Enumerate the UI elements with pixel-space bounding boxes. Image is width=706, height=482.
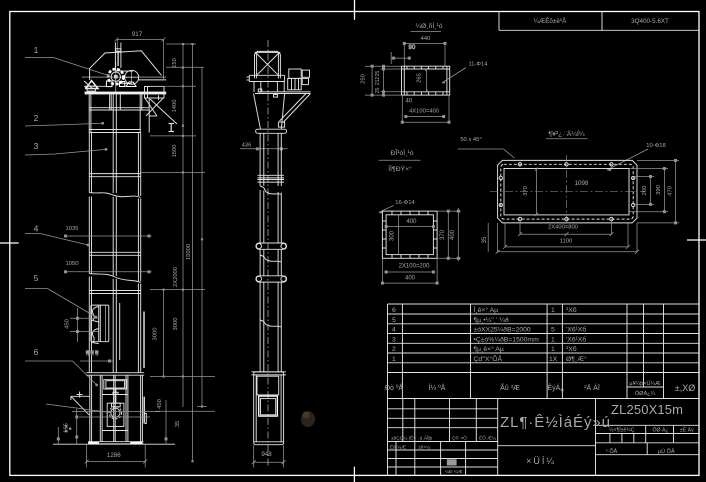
svg-text:×ÜÍ¼: ×ÜÍ¼ [526, 456, 556, 466]
svg-text:1X: 1X [549, 356, 558, 363]
svg-text:90: 90 [409, 45, 416, 51]
svg-text:3000: 3000 [153, 328, 159, 341]
svg-text:4: 4 [34, 224, 39, 234]
svg-text:400: 400 [405, 276, 416, 282]
svg-text:ZL¶·Ê½ÌáÉý»ú: ZL¶·Ê½ÌáÉý»ú [500, 414, 610, 431]
svg-text:ÍÌ¶ÐÝ×°: ÍÌ¶ÐÝ×° [388, 164, 412, 173]
svg-text:25: 25 [375, 71, 381, 77]
svg-text:1035: 1035 [66, 226, 79, 232]
svg-text:²Ä ÁÏ: ²Ä ÁÏ [584, 383, 600, 392]
svg-text:917: 917 [132, 31, 143, 38]
svg-text:300: 300 [390, 230, 396, 241]
svg-text:¶µ¸•¼"¸' ¼ð: ¶µ¸•¼"¸' ¼ð [474, 316, 509, 324]
svg-text:250: 250 [361, 74, 367, 84]
svg-text:4X100=400: 4X100=400 [409, 109, 439, 115]
svg-text:1: 1 [392, 356, 396, 363]
svg-text:6: 6 [392, 307, 396, 314]
svg-text:±ê×¼: ±ê×¼ [418, 445, 431, 451]
svg-text:3000: 3000 [173, 318, 179, 331]
svg-text:¹ ÕÅ: ¹ ÕÅ [606, 448, 618, 455]
svg-text:4: 4 [392, 327, 396, 334]
svg-text:15000: 15000 [186, 244, 192, 260]
svg-text:50 x 45°: 50 x 45° [460, 137, 481, 143]
svg-text:•Ç±ó%¼ðB=1500mm: •Ç±ó%¼ðB=1500mm [474, 335, 540, 343]
svg-text:1400: 1400 [172, 100, 178, 113]
svg-text:370: 370 [440, 229, 446, 240]
svg-text:150: 150 [172, 58, 178, 68]
svg-text:1: 1 [551, 346, 555, 353]
svg-text:265: 265 [417, 73, 423, 83]
svg-text:35: 35 [175, 421, 181, 427]
svg-text:ÖØÁ¿¼: ÖØÁ¿¼ [635, 390, 656, 397]
svg-text:¼Ø¸ñÍ¸¹ó: ¼Ø¸ñÍ¸¹ó [415, 21, 442, 30]
svg-text:165: 165 [64, 423, 70, 433]
svg-text:6: 6 [34, 347, 39, 357]
svg-text:436: 436 [242, 143, 252, 149]
svg-text:ÊýÁ¿: ÊýÁ¿ [547, 383, 564, 392]
svg-text:'X6¹Xб: 'X6¹Xб [566, 335, 586, 343]
svg-text:Çď"X°ÕÅ: Çď"X°ÕÅ [474, 354, 503, 363]
svg-text:2X400=800: 2X400=800 [548, 225, 578, 231]
svg-text:2: 2 [34, 113, 39, 123]
svg-text:470: 470 [668, 186, 674, 196]
svg-text:½×¶Î±ê¼Ç: ½×¶Î±ê¼Ç [609, 427, 635, 434]
svg-text:ÖØ Á¿: ÖØ Á¿ [653, 427, 669, 434]
svg-text:5: 5 [551, 327, 555, 334]
svg-text:Ðò ºÅ: Ðò ºÅ [385, 383, 403, 392]
svg-text:3: 3 [392, 336, 396, 343]
svg-text:1500: 1500 [172, 145, 178, 158]
svg-text:400: 400 [450, 229, 456, 240]
svg-text:Éè ¼Æ: Éè ¼Æ [390, 444, 406, 451]
svg-text:2X100=200: 2X100=200 [399, 264, 431, 270]
svg-text:400: 400 [406, 219, 417, 225]
svg-text:212: 212 [375, 77, 381, 86]
svg-text:'X6¹Xб: 'X6¹Xб [566, 326, 586, 334]
svg-text:¹Xб: ¹Xб [566, 345, 577, 353]
svg-text:40: 40 [406, 99, 413, 105]
svg-text:1: 1 [34, 45, 39, 55]
svg-text:Ç© ×Ö: Ç© ×Ö [452, 435, 467, 442]
svg-text:390: 390 [656, 185, 662, 195]
svg-text:1286: 1286 [107, 452, 121, 459]
svg-text:25: 25 [375, 88, 381, 94]
svg-text:ZL250X15m: ZL250X15m [611, 402, 683, 417]
svg-text:5: 5 [34, 273, 39, 283]
svg-text:ÐÎ¹óÍ¸¹ó: ÐÎ¹óÍ¸¹ó [390, 148, 413, 157]
svg-text:Ãû ³Æ: Ãû ³Æ [500, 383, 520, 392]
svg-text:10-Φ18: 10-Φ18 [646, 143, 665, 149]
svg-text:450: 450 [157, 399, 163, 409]
svg-text:1100: 1100 [560, 239, 572, 245]
svg-text:¶¥²¿·¨À¼Í¼: ¶¥²¿·¨À¼Í¼ [548, 129, 584, 138]
svg-text:3Q400-5.6XT: 3Q400-5.6XT [631, 18, 669, 25]
svg-text:5: 5 [392, 317, 396, 324]
svg-text:¹Xб: ¹Xб [566, 306, 577, 314]
svg-text:3: 3 [34, 141, 39, 151]
svg-text:±È Àý: ±È Àý [680, 427, 694, 434]
svg-text:1: 1 [551, 336, 555, 343]
svg-text:¼ÆÊõ±êºÅ: ¼ÆÊõ±êºÅ [534, 16, 568, 25]
svg-text:¸ü¸ÄÎļþ: ¸ü¸ÄÎļþ [418, 435, 432, 442]
svg-text:±,XØ: ±,XØ [675, 383, 695, 393]
svg-text:450: 450 [65, 319, 71, 329]
svg-text:440: 440 [421, 36, 431, 42]
svg-text:ÈÕ Æ¼: ÈÕ Æ¼ [479, 435, 497, 442]
svg-text:Ø¶¸Æ°: Ø¶¸Æ° [566, 355, 587, 363]
svg-text:µÚ ÕÅ: µÚ ÕÅ [658, 448, 675, 455]
svg-text:370: 370 [523, 186, 529, 196]
svg-text:1: 1 [551, 307, 555, 314]
svg-text:Í¼ ºÅ: Í¼ ºÅ [429, 383, 446, 392]
svg-text:16-Φ14: 16-Φ14 [395, 200, 415, 206]
svg-text:948: 948 [261, 451, 272, 458]
svg-text:µ¥¼þ×Ü¼Æ: µ¥¼þ×Ü¼Æ [629, 380, 661, 387]
svg-text:11-Φ14: 11-Φ14 [468, 62, 488, 68]
svg-text:1098: 1098 [575, 180, 589, 187]
svg-text:±óXX25¼ðB=2000: ±óXX25¼ðB=2000 [474, 326, 531, 334]
svg-text:2X2000: 2X2000 [173, 267, 179, 287]
svg-text:Ì¸ê×° Aµ: Ì¸ê×° Aµ [474, 305, 499, 314]
svg-text:1050: 1050 [66, 261, 79, 267]
svg-text:35: 35 [482, 236, 488, 243]
svg-text:2: 2 [392, 346, 396, 353]
svg-text:¼Ð ¼Æ: ¼Ð ¼Æ [445, 469, 463, 475]
svg-text:¶µ¸ê×° Aµ: ¶µ¸ê×° Aµ [474, 345, 504, 353]
svg-text:260: 260 [642, 186, 648, 196]
